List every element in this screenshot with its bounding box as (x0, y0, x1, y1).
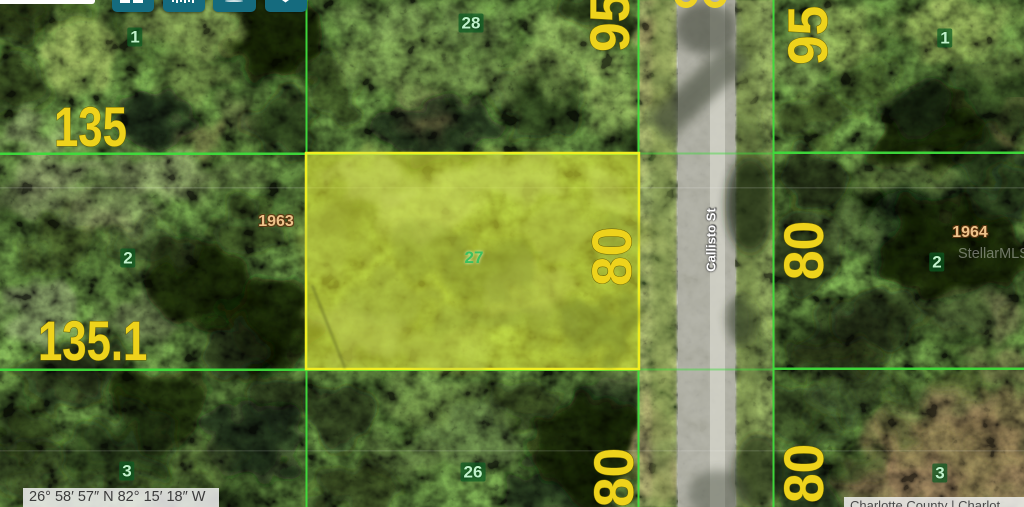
svg-text:80: 80 (583, 448, 646, 507)
svg-text:135: 135 (54, 96, 127, 158)
svg-text:80: 80 (773, 221, 836, 280)
svg-text:95: 95 (579, 0, 642, 52)
svg-text:80: 80 (581, 227, 644, 286)
svg-text:80: 80 (773, 444, 836, 503)
svg-text:95: 95 (777, 6, 840, 65)
svg-text:135.1: 135.1 (38, 310, 147, 372)
